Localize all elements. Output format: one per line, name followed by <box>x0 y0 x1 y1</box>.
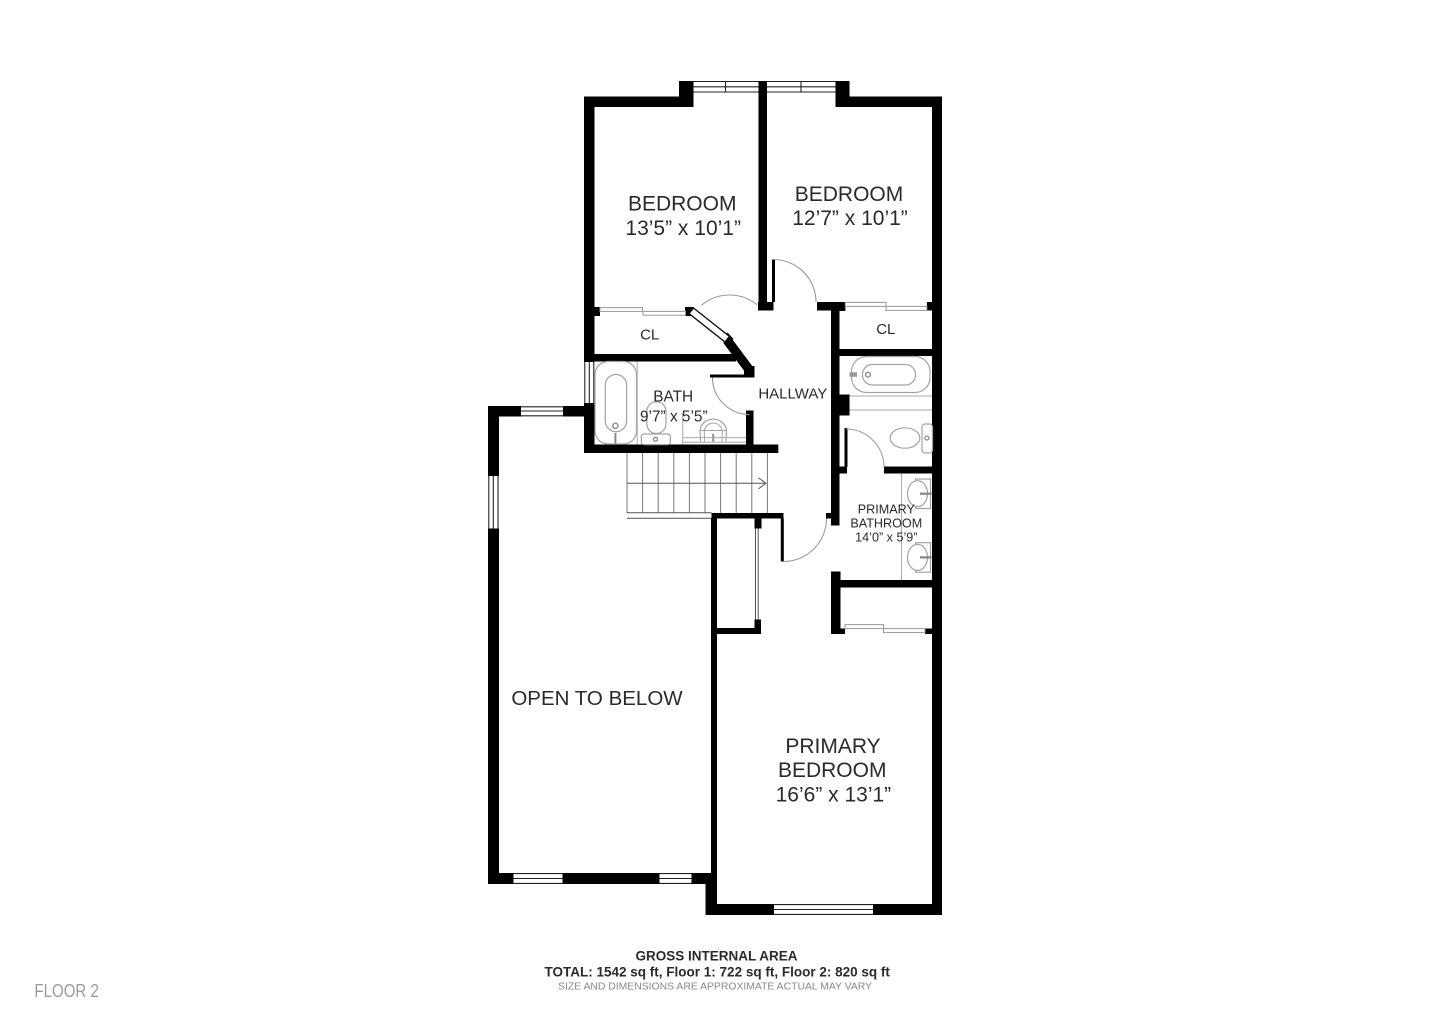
svg-text:14’0” x 5’9”: 14’0” x 5’9” <box>855 530 917 544</box>
svg-text:CL: CL <box>876 321 895 338</box>
svg-text:PRIMARY: PRIMARY <box>858 503 916 517</box>
svg-text:BEDROOM: BEDROOM <box>628 193 737 216</box>
svg-text:SIZE AND DIMENSIONS ARE APPROX: SIZE AND DIMENSIONS ARE APPROXIMATE ACTU… <box>558 982 872 993</box>
svg-text:CL: CL <box>640 327 659 344</box>
svg-text:BEDROOM: BEDROOM <box>778 759 887 782</box>
svg-text:TOTAL: 1542 sq ft, Floor 1: 72: TOTAL: 1542 sq ft, Floor 1: 722 sq ft, F… <box>545 965 891 980</box>
svg-text:12’7” x 10’1”: 12’7” x 10’1” <box>792 207 908 230</box>
svg-text:HALLWAY: HALLWAY <box>758 386 827 403</box>
svg-text:PRIMARY: PRIMARY <box>785 735 880 758</box>
svg-text:BEDROOM: BEDROOM <box>795 183 904 206</box>
svg-text:13’5” x 10’1”: 13’5” x 10’1” <box>625 217 741 240</box>
svg-text:9’7” x 5’5”: 9’7” x 5’5” <box>640 409 708 426</box>
svg-text:BATH: BATH <box>653 389 693 406</box>
svg-text:FLOOR 2: FLOOR 2 <box>34 980 99 1001</box>
svg-text:16’6” x 13’1”: 16’6” x 13’1” <box>776 784 892 807</box>
svg-text:OPEN TO BELOW: OPEN TO BELOW <box>511 687 683 710</box>
svg-text:BATHROOM: BATHROOM <box>850 517 922 531</box>
svg-text:GROSS INTERNAL AREA: GROSS INTERNAL AREA <box>635 949 797 964</box>
